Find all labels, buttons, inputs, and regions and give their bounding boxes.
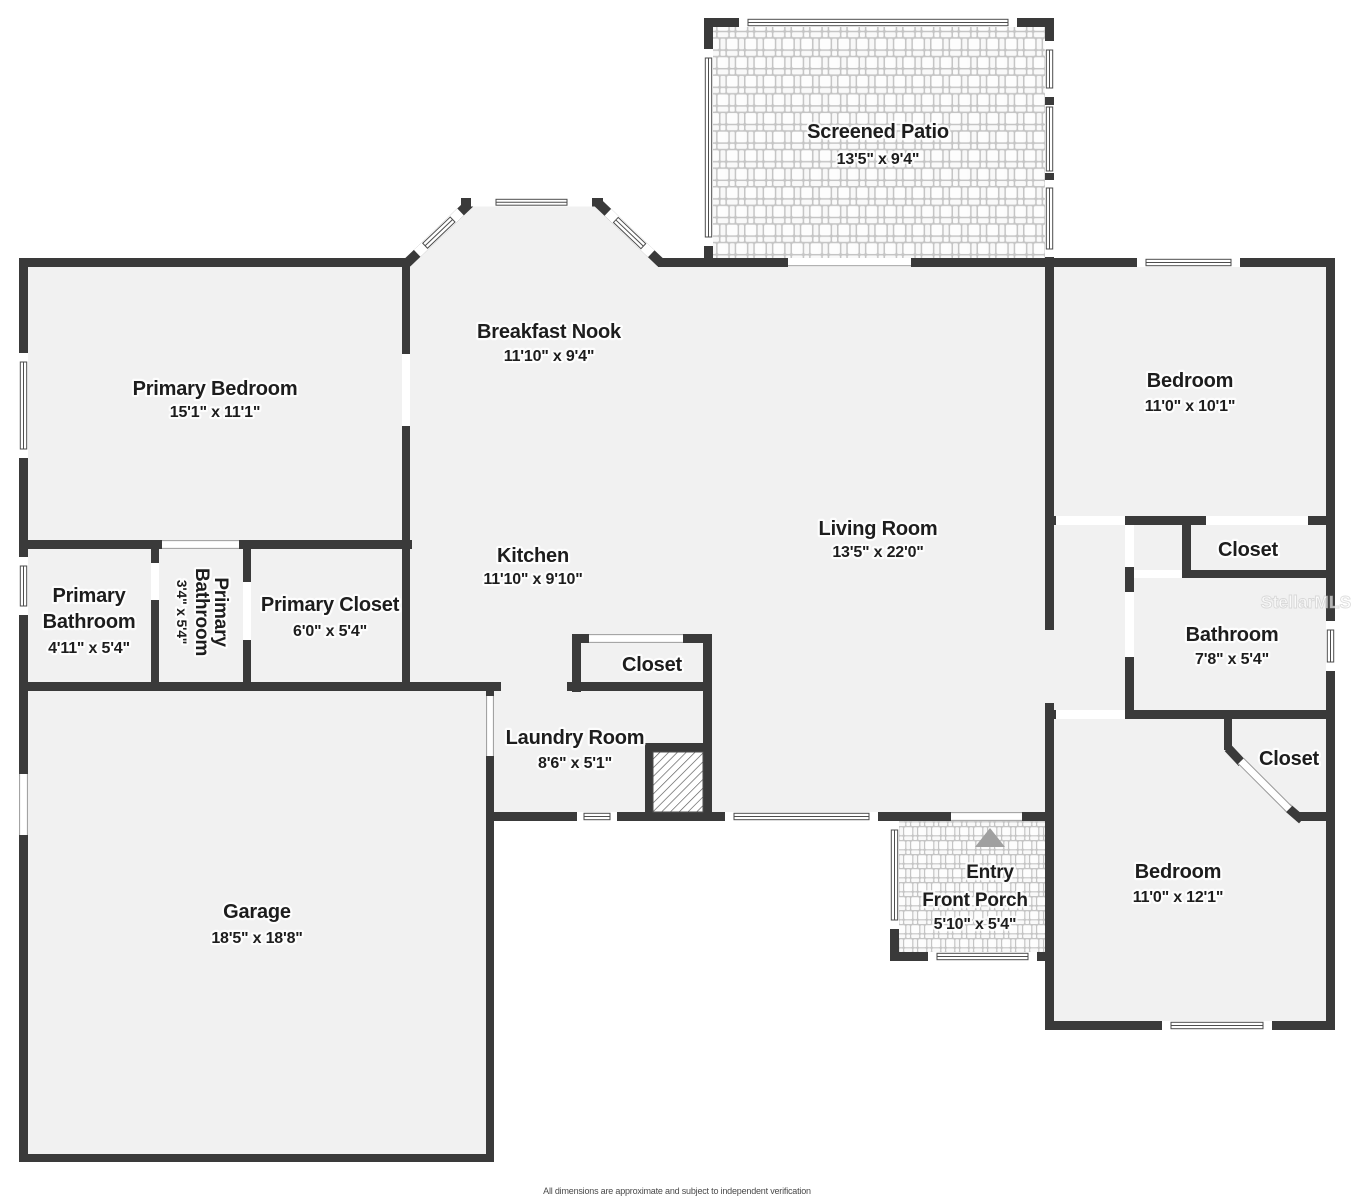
- svg-text:7'8" x 5'4": 7'8" x 5'4": [1195, 651, 1269, 668]
- svg-text:Closet: Closet: [1218, 539, 1278, 561]
- svg-text:Entry: Entry: [966, 862, 1014, 883]
- svg-text:Bedroom: Bedroom: [1147, 370, 1233, 392]
- svg-text:4'11" x 5'4": 4'11" x 5'4": [48, 640, 130, 657]
- svg-text:11'0" x 12'1": 11'0" x 12'1": [1133, 889, 1223, 906]
- svg-text:18'5" x 18'8": 18'5" x 18'8": [211, 930, 302, 947]
- svg-text:11'10" x 9'4": 11'10" x 9'4": [504, 348, 594, 365]
- svg-text:Laundry Room: Laundry Room: [506, 727, 645, 749]
- svg-text:Closet: Closet: [622, 654, 682, 676]
- svg-text:5'10" x 5'4": 5'10" x 5'4": [934, 916, 1017, 933]
- svg-text:Front Porch: Front Porch: [922, 890, 1027, 911]
- svg-text:Primary Bedroom: Primary Bedroom: [133, 378, 298, 400]
- svg-text:11'0" x 10'1": 11'0" x 10'1": [1145, 398, 1235, 415]
- svg-text:Kitchen: Kitchen: [497, 545, 569, 567]
- svg-text:Bathroom: Bathroom: [1186, 624, 1279, 646]
- svg-text:Bedroom: Bedroom: [1135, 861, 1221, 883]
- svg-text:13'5" x 9'4": 13'5" x 9'4": [837, 151, 920, 168]
- svg-text:3'4" x 5'4": 3'4" x 5'4": [174, 580, 190, 644]
- svg-text:11'10" x 9'10": 11'10" x 9'10": [483, 571, 582, 588]
- svg-text:Bathroom: Bathroom: [43, 611, 136, 633]
- svg-text:Primary: Primary: [210, 577, 231, 647]
- svg-text:8'6" x 5'1": 8'6" x 5'1": [538, 755, 612, 772]
- svg-text:15'1" x 11'1": 15'1" x 11'1": [170, 404, 260, 421]
- svg-text:Primary Closet: Primary Closet: [261, 594, 400, 616]
- svg-text:Primary: Primary: [52, 585, 126, 607]
- svg-text:6'0" x 5'4": 6'0" x 5'4": [293, 623, 367, 640]
- svg-text:All dimensions are approximate: All dimensions are approximate and subje…: [543, 1186, 811, 1196]
- svg-text:Closet: Closet: [1259, 748, 1319, 770]
- svg-text:Bathroom: Bathroom: [191, 568, 212, 656]
- svg-text:Screened Patio: Screened Patio: [807, 121, 949, 143]
- svg-text:13'5" x 22'0": 13'5" x 22'0": [832, 544, 923, 561]
- svg-text:Garage: Garage: [223, 901, 291, 923]
- svg-text:Living Room: Living Room: [819, 518, 938, 540]
- svg-text:Breakfast Nook: Breakfast Nook: [477, 321, 622, 343]
- svg-text:StellarMLS: StellarMLS: [1261, 592, 1351, 612]
